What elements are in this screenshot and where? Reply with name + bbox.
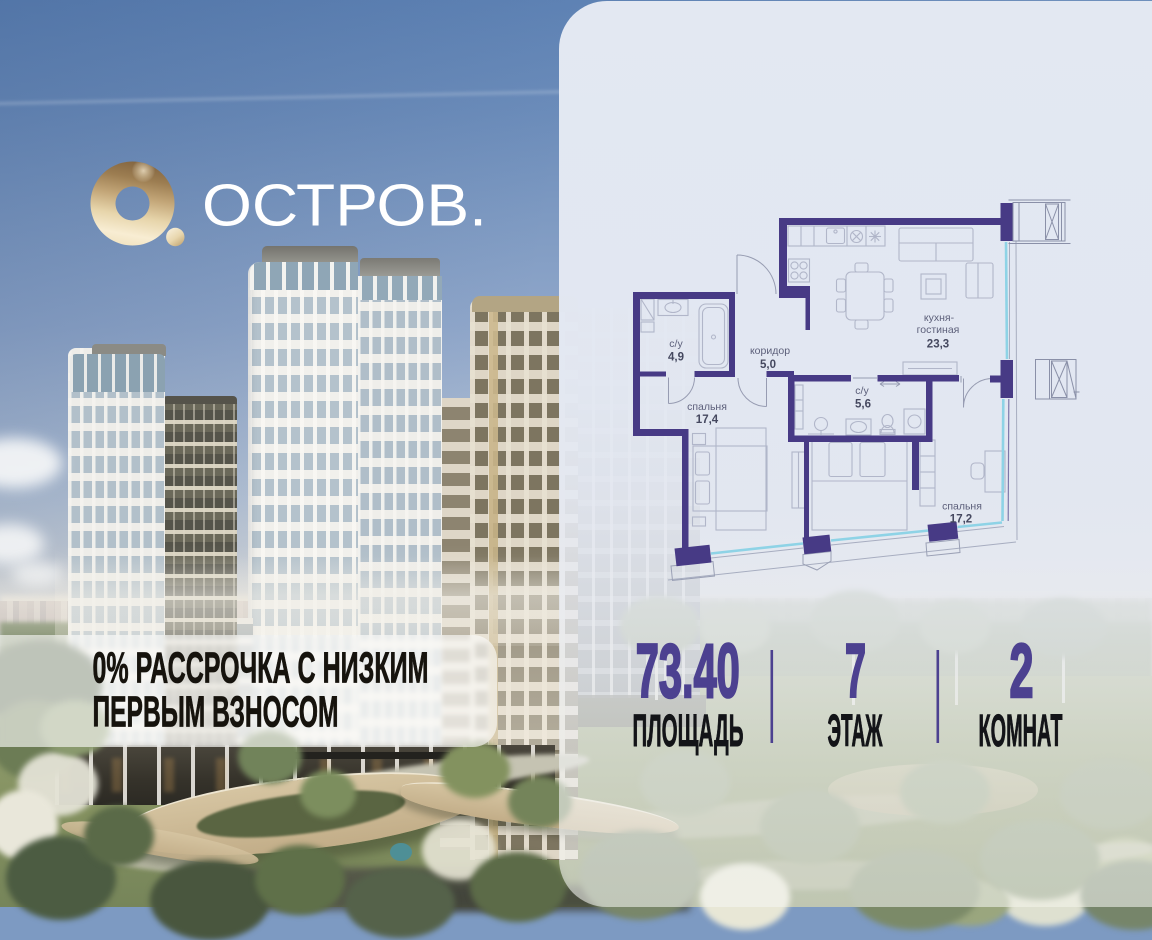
svg-text:7: 7: [845, 629, 866, 714]
svg-text:ПЕРВЫМ ВЗНОСОМ: ПЕРВЫМ ВЗНОСОМ: [93, 689, 339, 737]
svg-text:2: 2: [1010, 629, 1034, 714]
svg-text:КОМНАТ: КОМНАТ: [979, 705, 1063, 756]
svg-text:73.40: 73.40: [636, 629, 740, 714]
svg-text:ПЛОЩАДЬ: ПЛОЩАДЬ: [633, 705, 744, 756]
svg-text:ЭТАЖ: ЭТАЖ: [828, 705, 883, 756]
svg-text:ОСТРОВ.: ОСТРОВ.: [202, 172, 487, 239]
svg-text:0% РАССРОЧКА С НИЗКИМ: 0% РАССРОЧКА С НИЗКИМ: [93, 645, 429, 693]
